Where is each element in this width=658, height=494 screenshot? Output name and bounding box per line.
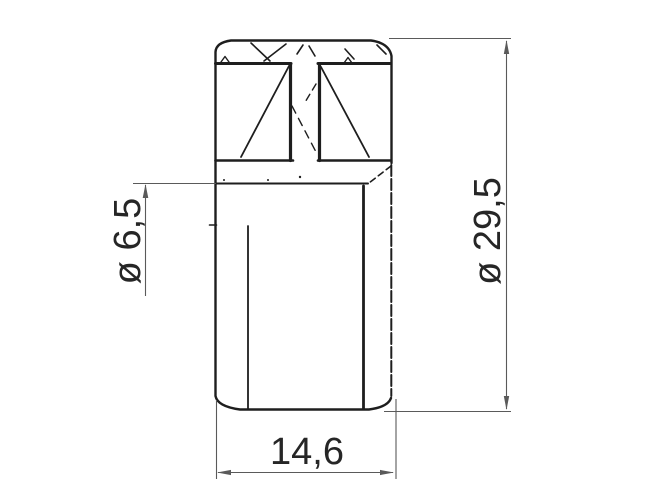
speckle	[223, 179, 225, 181]
dimension-lines-group	[133, 39, 511, 480]
pocket-diagonal-right	[321, 67, 369, 157]
dimension-text-group: ø 6,5 ø 29,5 14,6	[107, 177, 509, 473]
slot-hatch-dash	[304, 84, 316, 104]
technical-drawing-svg: ø 6,5 ø 29,5 14,6	[0, 0, 658, 494]
speckle	[267, 179, 269, 181]
knurl-hatch-group	[221, 43, 386, 63]
speckle	[299, 176, 301, 178]
drawing-canvas: ø 6,5 ø 29,5 14,6	[0, 0, 658, 494]
length-label: 14,6	[270, 431, 344, 473]
pocket-diagonal-left	[241, 66, 289, 157]
surface-mark	[221, 57, 229, 63]
knurl-mark	[297, 45, 303, 54]
knurl-mark	[345, 49, 354, 59]
speckles-group	[223, 176, 301, 181]
outer-diameter-label: ø 29,5	[467, 177, 509, 285]
part-outline	[216, 41, 392, 410]
outer-dim-arrow-down-icon	[504, 396, 509, 410]
chamfer-hidden-edge	[369, 166, 391, 183]
bore-dim-arrow-up-icon	[143, 184, 149, 198]
part-geometry-group	[210, 41, 392, 410]
slot-hatch-dash	[292, 106, 316, 152]
length-dim-arrow-left-icon	[217, 470, 231, 475]
slot-hatch-group	[292, 84, 316, 152]
knurl-mark	[309, 46, 315, 56]
knurl-mark	[264, 44, 286, 61]
length-dim-arrow-right-icon	[380, 470, 394, 475]
bore-diameter-label: ø 6,5	[107, 198, 149, 285]
outer-dim-arrow-up-icon	[504, 40, 509, 54]
